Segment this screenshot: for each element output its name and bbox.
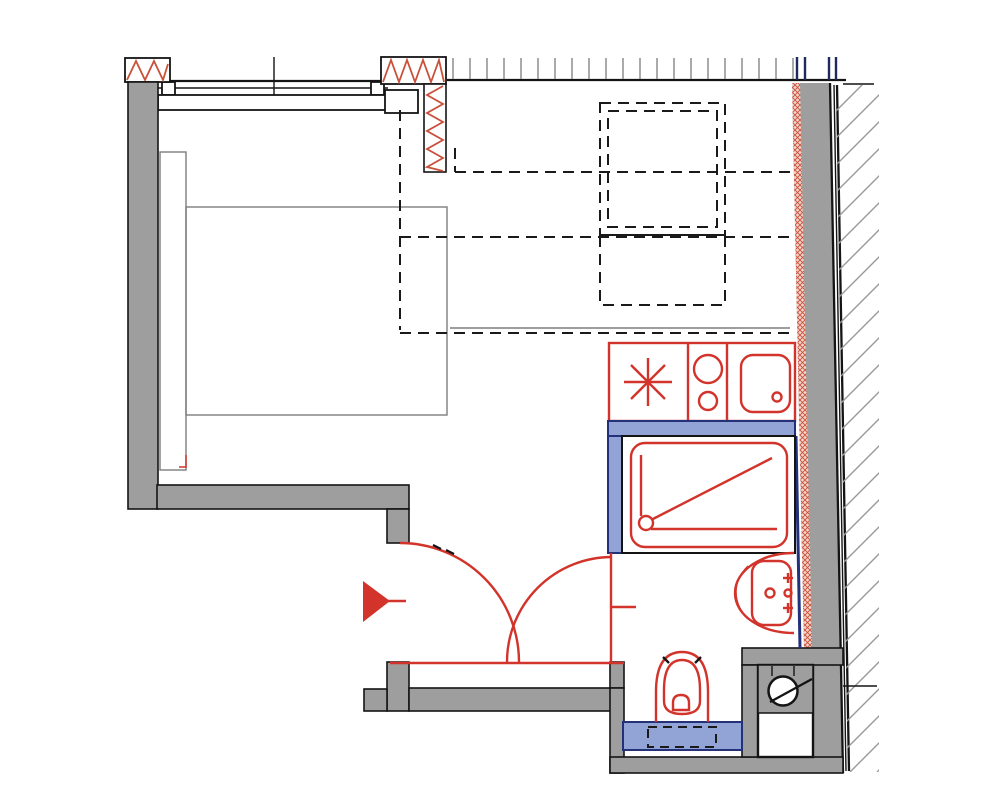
bathroom-right-wall-line <box>796 436 800 648</box>
right-wall <box>148 83 1000 773</box>
left-wall <box>128 82 158 509</box>
window-sill <box>158 95 388 110</box>
entrance-jamb-upper <box>387 509 409 543</box>
shower-left-wall <box>608 436 622 553</box>
floor-plan-drawing <box>0 0 1000 810</box>
overhead-cabinet-lower <box>600 235 725 305</box>
bed <box>186 207 447 415</box>
entry-jamb-right <box>610 662 624 688</box>
overhead-cabinet-outer <box>600 103 725 235</box>
toilet <box>656 652 708 722</box>
floor-plan-canvas <box>0 0 1000 810</box>
overhead-storage-dashed <box>400 103 792 333</box>
shower <box>622 436 795 553</box>
washbasin <box>735 553 794 633</box>
door-swing-left <box>400 543 519 662</box>
tap-symbols <box>783 573 793 613</box>
door-swing-right <box>507 557 612 662</box>
entry-bottom-wall <box>409 688 611 711</box>
window-end-piece <box>385 90 418 113</box>
headboard-cabinet <box>160 152 186 470</box>
shower-enclosure <box>622 436 795 553</box>
kitchenette <box>609 343 795 421</box>
entrance-arrow-icon <box>363 581 390 622</box>
window <box>158 57 418 113</box>
living-entry-wall <box>157 485 409 509</box>
shower-drain <box>639 516 653 530</box>
entrance-jamb-lower <box>387 662 409 711</box>
entry-doors <box>363 543 636 663</box>
red-corner-mark <box>179 455 186 467</box>
overhead-cabinet-inner <box>608 111 717 227</box>
insulation-pier-mid <box>381 57 446 172</box>
top-wall <box>447 57 874 84</box>
entry-wall-stub <box>364 689 387 711</box>
bathroom-bottom-wall <box>610 757 843 773</box>
shower-top-wall <box>608 421 795 436</box>
fridge-asterisk-icon <box>624 358 672 406</box>
washbasin-lower-wall <box>742 648 843 665</box>
wall-above-ticks <box>453 58 793 79</box>
navy-ticks <box>797 57 836 80</box>
niche-divider-wall <box>742 665 758 757</box>
insulation-pier-top-left <box>125 58 170 82</box>
existing-wall-hatch <box>148 84 1000 772</box>
window-mullion-left <box>162 82 175 95</box>
